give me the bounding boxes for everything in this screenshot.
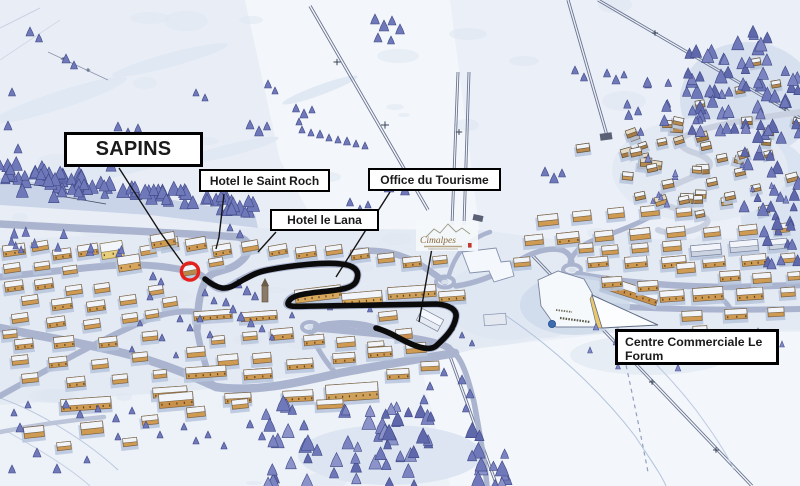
svg-text:Cimalpes: Cimalpes bbox=[420, 236, 456, 246]
